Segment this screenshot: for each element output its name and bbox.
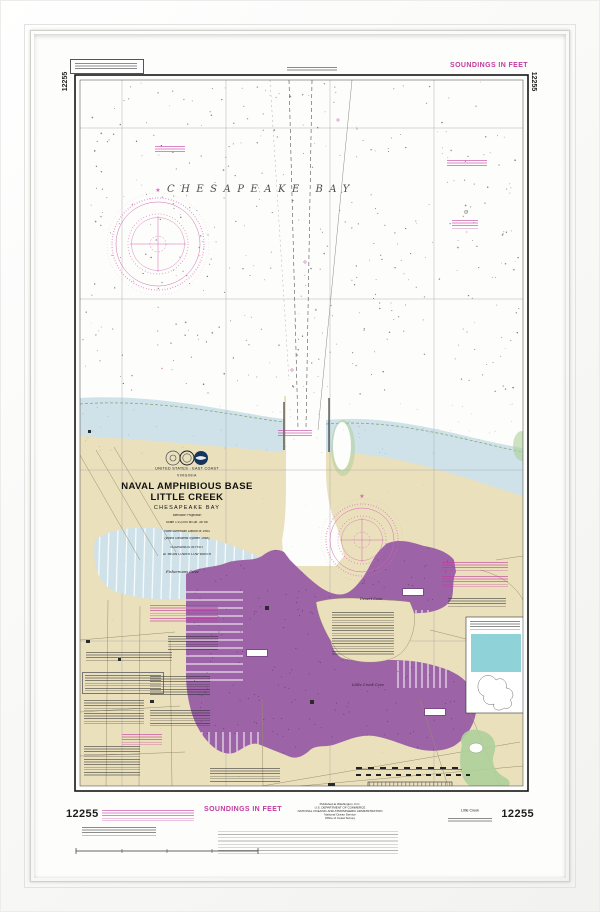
- bottom-paragraph: [218, 831, 398, 856]
- svg-text:★: ★: [359, 493, 364, 500]
- edition-label: Little Creek: [434, 809, 506, 813]
- title-scale: Scale 1:10,000 at Lat. 36°56': [138, 521, 237, 525]
- title-state: VIRGINIA: [135, 474, 239, 478]
- edition-note: [448, 818, 492, 822]
- right-note-magenta: [442, 576, 508, 589]
- title-soundings-1: SOUNDINGS IN FEET: [138, 546, 237, 550]
- bay-note: [447, 160, 487, 167]
- chart-title-block: UNITED STATES - EAST COAST VIRGINIA NAVA…: [97, 449, 277, 560]
- svg-text:★: ★: [155, 187, 160, 194]
- land-note: [86, 652, 172, 662]
- top-margin-note: [287, 67, 337, 71]
- soundings-note-bottom: SOUNDINGS IN FEET: [204, 806, 282, 813]
- bay-note: [155, 146, 185, 154]
- agency-emblems: [97, 449, 277, 467]
- island-note: [332, 612, 394, 656]
- soundings-note-top: SOUNDINGS IN FEET: [430, 62, 528, 69]
- publisher-block: Published at Washington, D.C. U.S. DEPAR…: [276, 803, 404, 821]
- bottom-left-note: [82, 827, 156, 836]
- title-datum-1: North American Datum of 1983: [138, 530, 237, 534]
- pier-label-box: [402, 588, 424, 596]
- pier-label-box: [246, 649, 268, 657]
- label-desert-cove: Desert Cove: [360, 597, 382, 601]
- land-note: [84, 700, 144, 726]
- label-fishermans-cove: Fishermans Cove: [166, 570, 199, 574]
- inset-legend: [470, 621, 520, 630]
- framed-nautical-chart: ★★ SOUNDINGS IN FEET 12255 12255 CHESAPE…: [0, 0, 600, 912]
- land-note: [210, 768, 280, 782]
- channel-note: [278, 430, 312, 437]
- right-note: [448, 598, 506, 608]
- bay-name-label: CHESAPEAKE BAY: [167, 184, 356, 195]
- land-note: [84, 746, 140, 776]
- chart-number-right-edge: 12255: [530, 72, 537, 91]
- land-note-magenta: [122, 734, 162, 746]
- title-line-2: LITTLE CREEK: [97, 492, 277, 503]
- commerce-seal-icon: [166, 451, 180, 465]
- title-projection: Mercator Projection: [138, 514, 237, 518]
- publisher-line: Office of Coast Survey: [276, 817, 404, 821]
- pier-label-box: [424, 708, 446, 716]
- inset-box: [466, 617, 526, 713]
- bay-water: [80, 80, 523, 396]
- chart-number-bottom-left: 12255: [66, 808, 99, 820]
- pond: [469, 743, 483, 753]
- navy-seal-icon: [180, 451, 194, 465]
- lagoon: [333, 422, 351, 470]
- land-note: [168, 636, 218, 650]
- catalog-note-box: [70, 59, 144, 74]
- bay-note: [452, 220, 478, 229]
- right-note-magenta: [442, 562, 508, 571]
- land-note: [150, 676, 210, 696]
- land-note: [150, 710, 210, 726]
- title-line-1: NAVAL AMPHIBIOUS BASE: [97, 481, 277, 492]
- chart-number-left-edge: 12255: [62, 72, 69, 91]
- label-little-creek-cove: Little Creek Cove: [352, 683, 384, 687]
- land-note: [150, 605, 218, 623]
- title-datum-2: (World Geodetic System 1984): [138, 537, 237, 541]
- title-country: UNITED STATES - EAST COAST: [131, 467, 243, 471]
- title-soundings-2: AT MEAN LOWER LOW WATER: [138, 553, 237, 557]
- bottom-magenta-note: [102, 810, 194, 822]
